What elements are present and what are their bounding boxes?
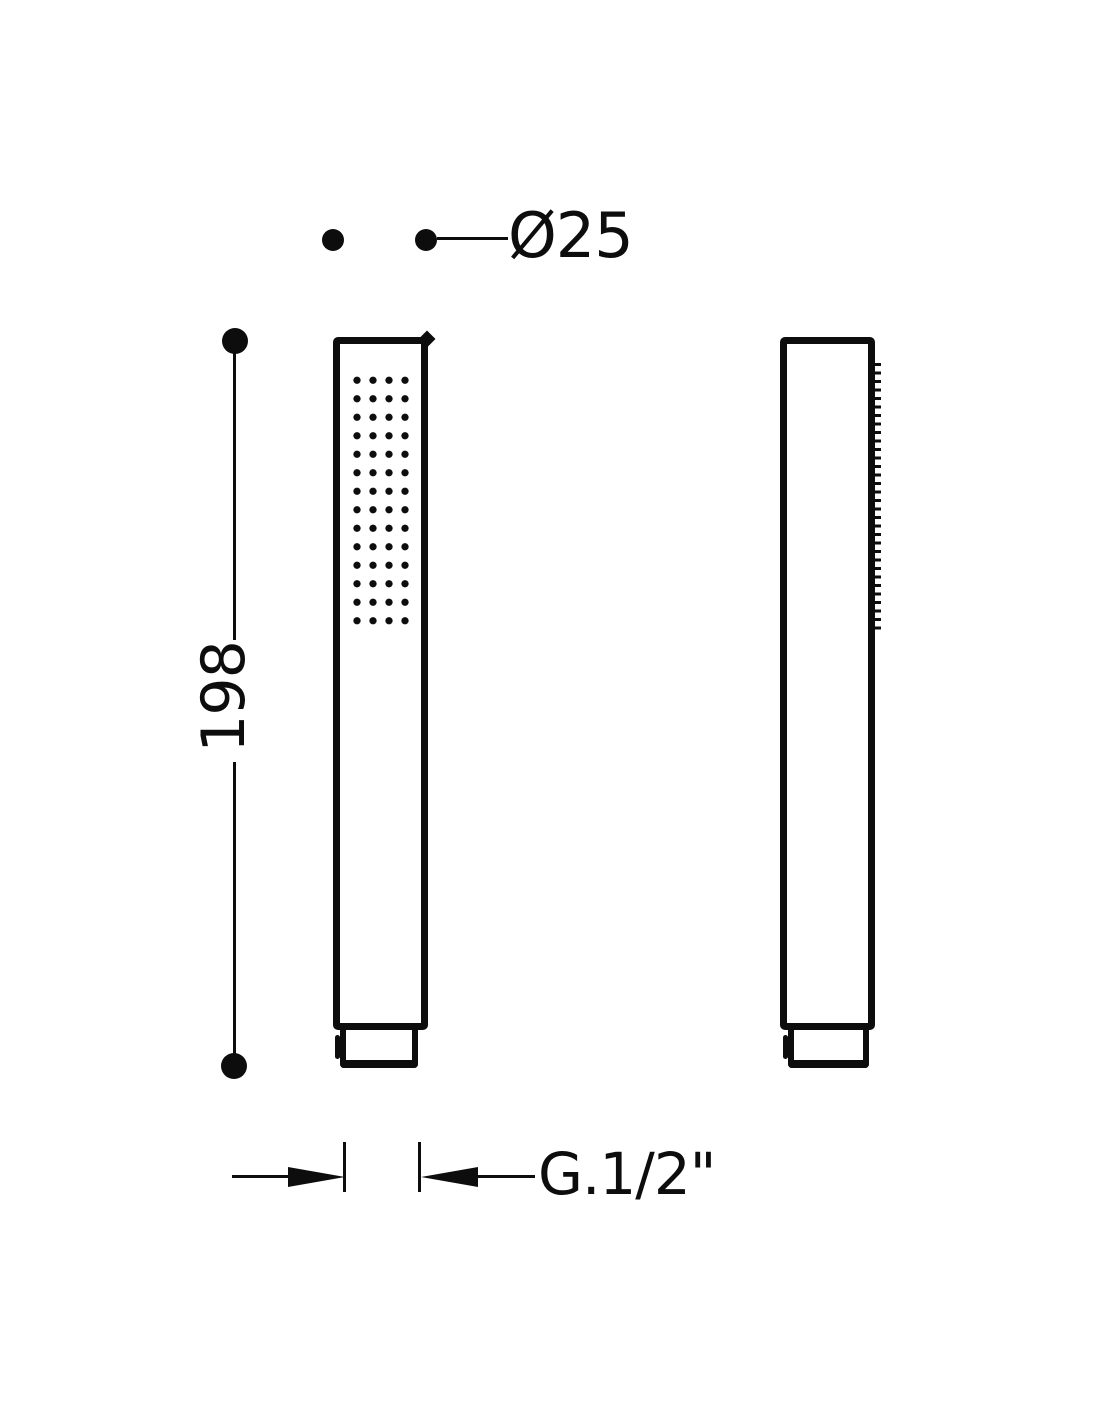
thread-dimension-label: G.1/2" [538,1145,715,1203]
height-dim-end-dot-top [222,328,248,354]
thread-dim-extension-tick-left [343,1142,346,1192]
front-connector-ridge-left [335,1035,340,1059]
height-dim-line-upper [233,352,236,640]
thread-dim-arrow-right [288,1167,345,1187]
side-view-thread-connector [788,1030,869,1068]
side-connector-ridge-left [783,1035,788,1059]
hand-shower-side-view-body [780,337,875,1030]
front-connector-ridge-right [413,1035,418,1059]
side-view-nozzle-edge-texture [875,363,881,633]
diameter-ref-dot-left [322,229,344,251]
diameter-dimension-label: Ø25 [508,205,633,267]
diameter-leader-line [437,237,508,240]
diameter-ref-dot-right [415,229,437,251]
height-dim-end-dot-bottom [221,1053,247,1079]
thread-dim-tail-line-left [232,1175,290,1178]
thread-dim-extension-tick-right [418,1142,421,1192]
height-dim-line-lower [233,762,236,1055]
height-dimension-label: 198 [194,637,254,757]
spray-face-nozzle-grid [349,371,413,631]
side-connector-ridge-right [864,1035,869,1059]
front-view-thread-connector [340,1030,418,1068]
thread-dim-tail-line-right [478,1175,535,1178]
thread-dim-arrow-left [421,1167,478,1187]
technical-drawing-canvas: Ø25 198 G.1/2" [0,0,1100,1422]
